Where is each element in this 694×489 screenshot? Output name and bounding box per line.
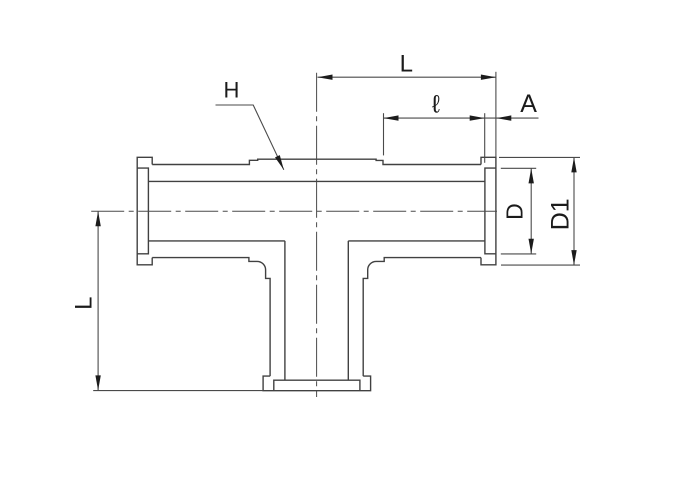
svg-text:D1: D1 [546, 198, 574, 230]
svg-text:H: H [224, 78, 240, 103]
svg-text:L: L [400, 51, 413, 78]
svg-text:D: D [502, 203, 528, 220]
svg-text:L: L [71, 297, 98, 310]
svg-text:A: A [520, 90, 537, 118]
svg-text:ℓ: ℓ [432, 91, 441, 119]
